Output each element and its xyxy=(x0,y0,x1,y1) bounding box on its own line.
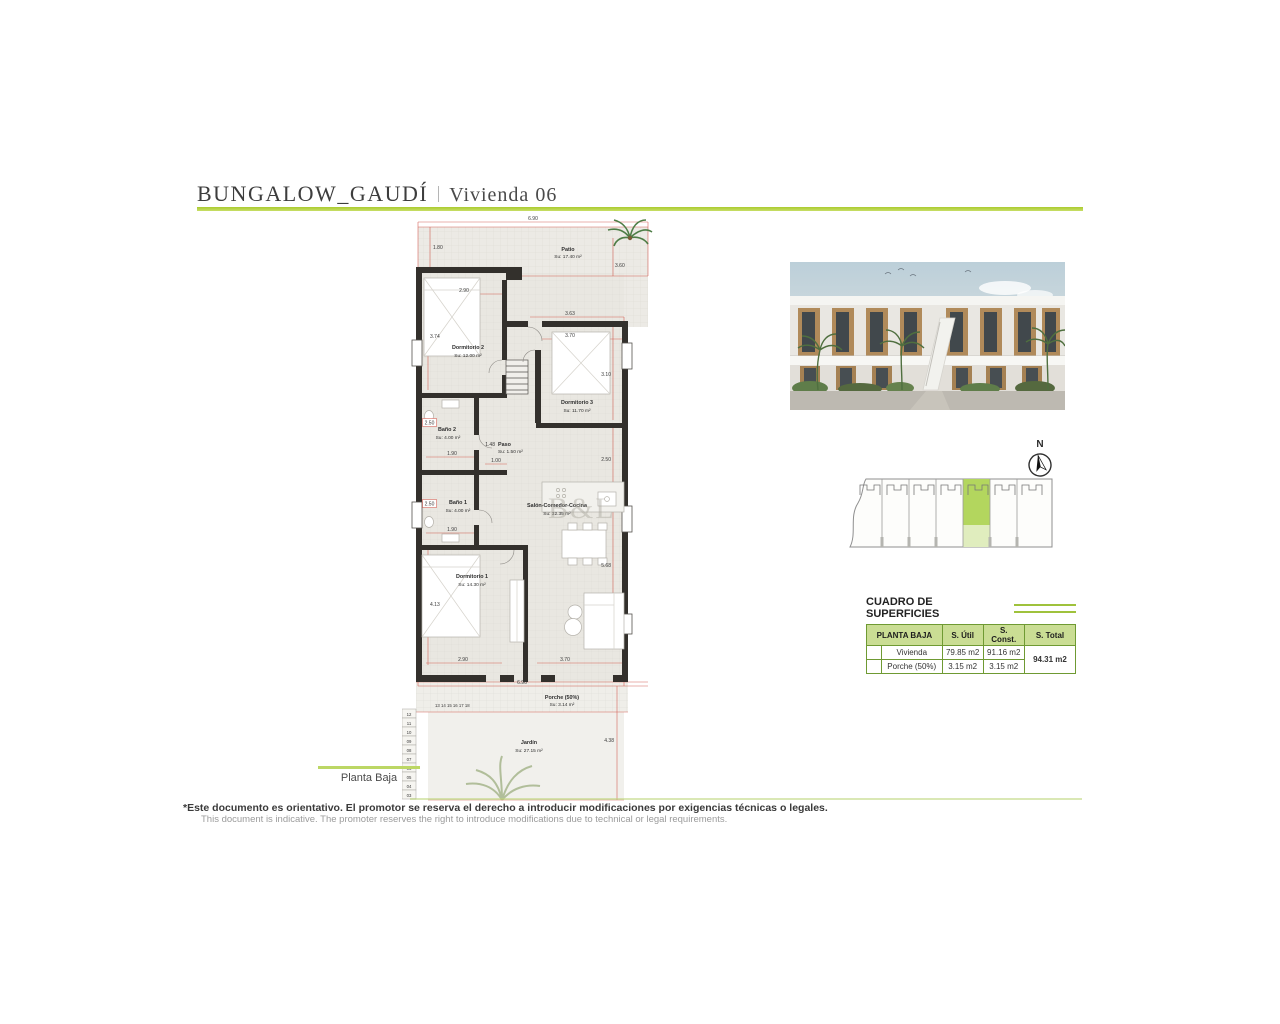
row-vivienda-util: 79.85 m2 xyxy=(942,646,983,660)
dim-label: 2.50 xyxy=(601,457,611,463)
dim-label: 2.50 xyxy=(425,502,435,508)
stair-number: 04 xyxy=(407,784,412,789)
room-area-dormitorio-1: Su: 14.30 m² xyxy=(458,582,486,588)
dim-label: 1.48 xyxy=(485,442,495,448)
disclaimer: *Este documento es orientativo. El promo… xyxy=(183,803,1093,825)
room-label-jardin: Jardín xyxy=(521,740,537,746)
surfaces-title-row: CUADRO DE SUPERFICIES xyxy=(866,596,1076,620)
row-porche-name: Porche (50%) xyxy=(881,660,942,674)
col-s-util: S. Útil xyxy=(942,625,983,646)
col-s-const: S. Const. xyxy=(983,625,1024,646)
dim-label: 4.38 xyxy=(604,738,614,744)
table-header-row: PLANTA BAJA S. Útil S. Const. S. Total xyxy=(867,625,1076,646)
dim-label: 3.63 xyxy=(565,311,575,317)
bottom-rule xyxy=(410,798,1082,800)
unit-title: Vivienda 06 xyxy=(449,184,557,207)
site-plan xyxy=(830,465,1065,560)
dim-label: 3.10 xyxy=(601,372,611,378)
page-title: BUNGALOW_GAUDÍ Vivienda 06 xyxy=(197,181,557,207)
dim-label: 3.74 xyxy=(430,334,440,340)
room-label-porche: Porche (50%) xyxy=(545,695,579,701)
room-area-dormitorio-2: Su: 12.00 m² xyxy=(454,353,482,359)
stair-number: 10 xyxy=(407,730,412,735)
room-area-jardin: Su: 27.15 m² xyxy=(515,748,543,754)
row-porche-const: 3.15 m2 xyxy=(983,660,1024,674)
interior-stair xyxy=(506,360,528,394)
project-title: BUNGALOW_GAUDÍ xyxy=(197,181,428,207)
dim-label: 4.13 xyxy=(430,602,440,608)
disclaimer-en: This document is indicative. The promote… xyxy=(201,814,1093,825)
room-label-dormitorio-2: Dormitorio 2 xyxy=(452,345,484,351)
room-label-paso: Paso xyxy=(498,442,512,448)
room-label-bano-1: Baño 1 xyxy=(449,500,467,506)
stair-number: 12 xyxy=(407,712,412,717)
dim-label: 3.60 xyxy=(615,263,625,269)
room-area-bano-1: Su: 4.00 m² xyxy=(446,508,471,514)
stair-number: 11 xyxy=(407,721,412,726)
room-label-dormitorio-1: Dormitorio 1 xyxy=(456,574,488,580)
room-area-dormitorio-3: Su: 11.70 m² xyxy=(563,408,591,414)
dim-label: 3.70 xyxy=(560,657,570,663)
north-label: N xyxy=(1036,439,1043,450)
row-spacer xyxy=(867,660,882,674)
plan-label: Planta Baja xyxy=(318,772,420,784)
room-label-dormitorio-3: Dormitorio 3 xyxy=(561,400,593,406)
dim-label: 1.90 xyxy=(447,527,457,533)
stair-number: 08 xyxy=(407,748,412,753)
stair-numbers-row: 13 14 15 16 17 18 xyxy=(435,703,470,708)
dim-label: 5.68 xyxy=(601,563,611,569)
dim-label: 3.70 xyxy=(565,333,575,339)
room-area-patio: Su: 17.40 m² xyxy=(554,254,582,260)
surfaces-panel: CUADRO DE SUPERFICIES PLANTA BAJA S. Úti… xyxy=(866,596,1076,674)
dim-label: 1.00 xyxy=(491,458,501,464)
stair-number: 07 xyxy=(407,757,412,762)
table-row: Vivienda 79.85 m2 91.16 m2 94.31 m2 xyxy=(867,646,1076,660)
dim-label: 2.90 xyxy=(459,288,469,294)
room-area-paso: Su: 1.50 m² xyxy=(498,449,523,455)
col-s-total: S. Total xyxy=(1024,625,1075,646)
dim-label: 1.80 xyxy=(433,245,443,251)
surfaces-title-rule xyxy=(1014,604,1076,613)
title-divider xyxy=(438,186,439,202)
dim-label: 1.90 xyxy=(447,451,457,457)
dim-label: 6.96 xyxy=(517,680,527,686)
floor-plan-drawing: 13 14 15 16 17 18 12 11 10 09 08 07 06 0… xyxy=(402,210,692,802)
disclaimer-es: *Este documento es orientativo. El promo… xyxy=(183,803,1093,814)
row-vivienda-const: 91.16 m2 xyxy=(983,646,1024,660)
room-label-patio: Patio xyxy=(561,247,575,253)
row-vivienda-name: Vivienda xyxy=(881,646,942,660)
room-label-bano-2: Baño 2 xyxy=(438,427,456,433)
total-value: 94.31 m2 xyxy=(1024,646,1075,674)
highlighted-unit xyxy=(963,479,990,525)
building-render xyxy=(790,262,1065,410)
dim-label: 2.90 xyxy=(458,657,468,663)
room-area-porche: Su: 3.14 m² xyxy=(550,702,575,708)
row-porche-util: 3.15 m2 xyxy=(942,660,983,674)
col-planta-baja: PLANTA BAJA xyxy=(867,625,943,646)
surfaces-title: CUADRO DE SUPERFICIES xyxy=(866,596,1008,620)
surfaces-table: PLANTA BAJA S. Útil S. Const. S. Total V… xyxy=(866,624,1076,674)
plan-label-rule xyxy=(318,766,420,769)
dim-label: 6.90 xyxy=(528,216,538,222)
room-area-bano-2: Su: 4.00 m² xyxy=(436,435,461,441)
watermark: B&L xyxy=(548,492,616,526)
stair-number: 09 xyxy=(407,739,412,744)
dim-label: 2.50 xyxy=(425,421,435,427)
row-spacer xyxy=(867,646,882,660)
